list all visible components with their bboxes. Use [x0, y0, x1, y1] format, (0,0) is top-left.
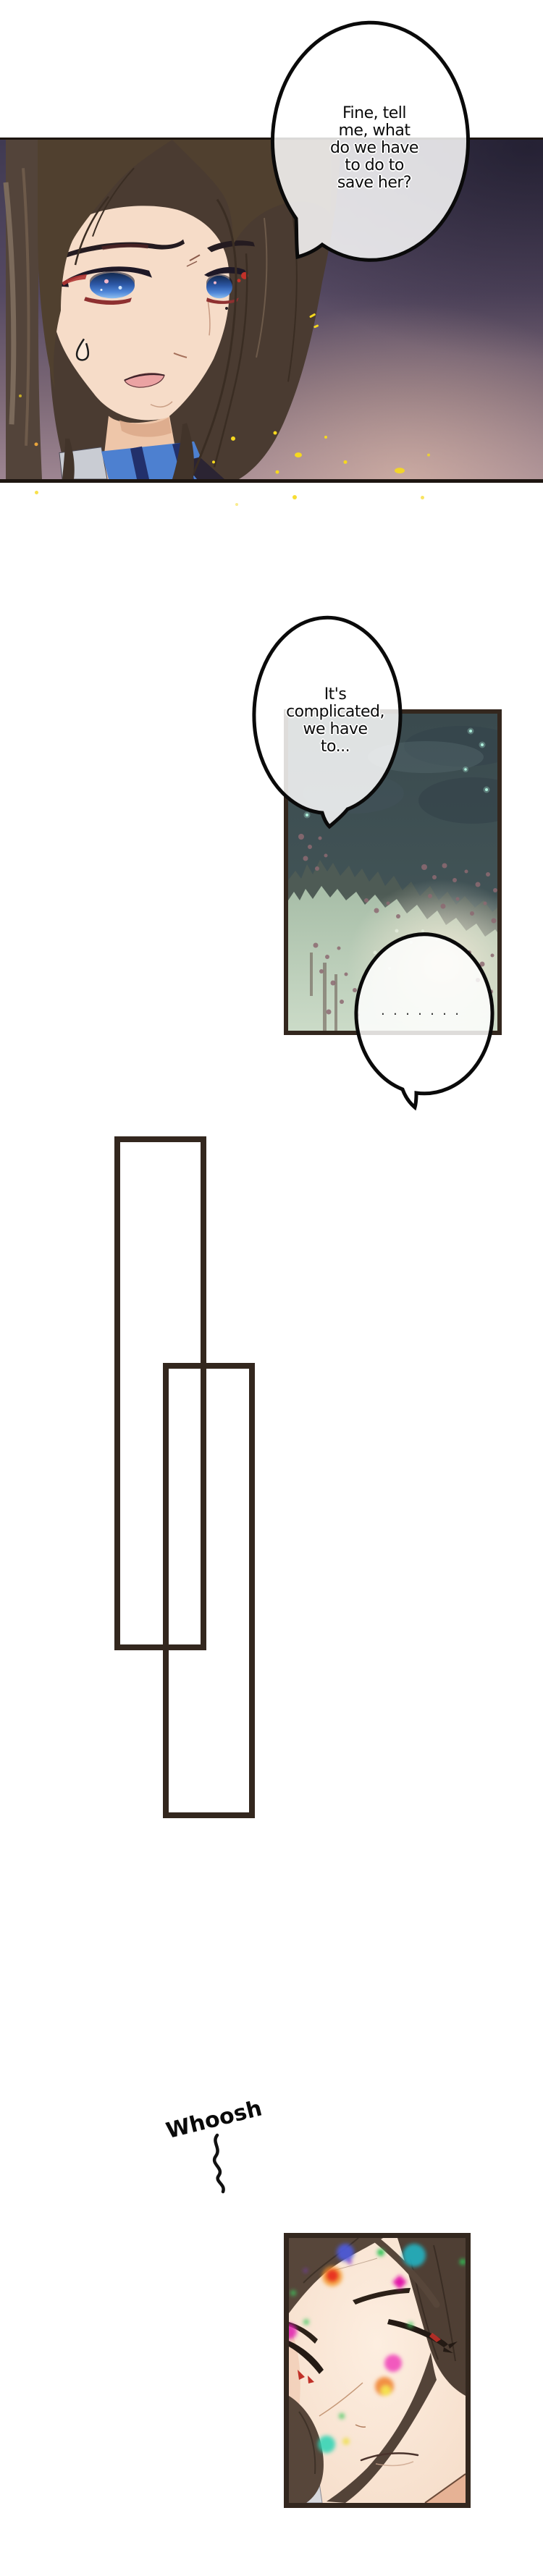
sfx-whoosh: Whoosh: [159, 2090, 282, 2203]
speech-bubble-1-text: Fine, tell me, what do we have to do to …: [298, 105, 450, 192]
empty-panel-frame-2: [163, 1363, 255, 1818]
ellipsis-bubble-text: ·······: [371, 1008, 475, 1021]
squiggle-icon: [214, 2135, 224, 2192]
panel-3-artwork: [289, 2238, 466, 2503]
whoosh-text: Whoosh: [164, 2095, 264, 2144]
sparkle-dot: [35, 491, 38, 494]
speech-bubble-2-text: It's complicated, we have to...: [259, 686, 411, 756]
sparkle-dot: [235, 503, 238, 506]
ellipsis-bubble: [348, 926, 500, 1115]
sparkle-dot: [292, 495, 297, 499]
panel-3: [284, 2233, 471, 2508]
comic-page: Fine, tell me, what do we have to do to …: [0, 0, 543, 2576]
beauty-mark: [225, 307, 228, 310]
sparkle-dot: [421, 496, 424, 499]
